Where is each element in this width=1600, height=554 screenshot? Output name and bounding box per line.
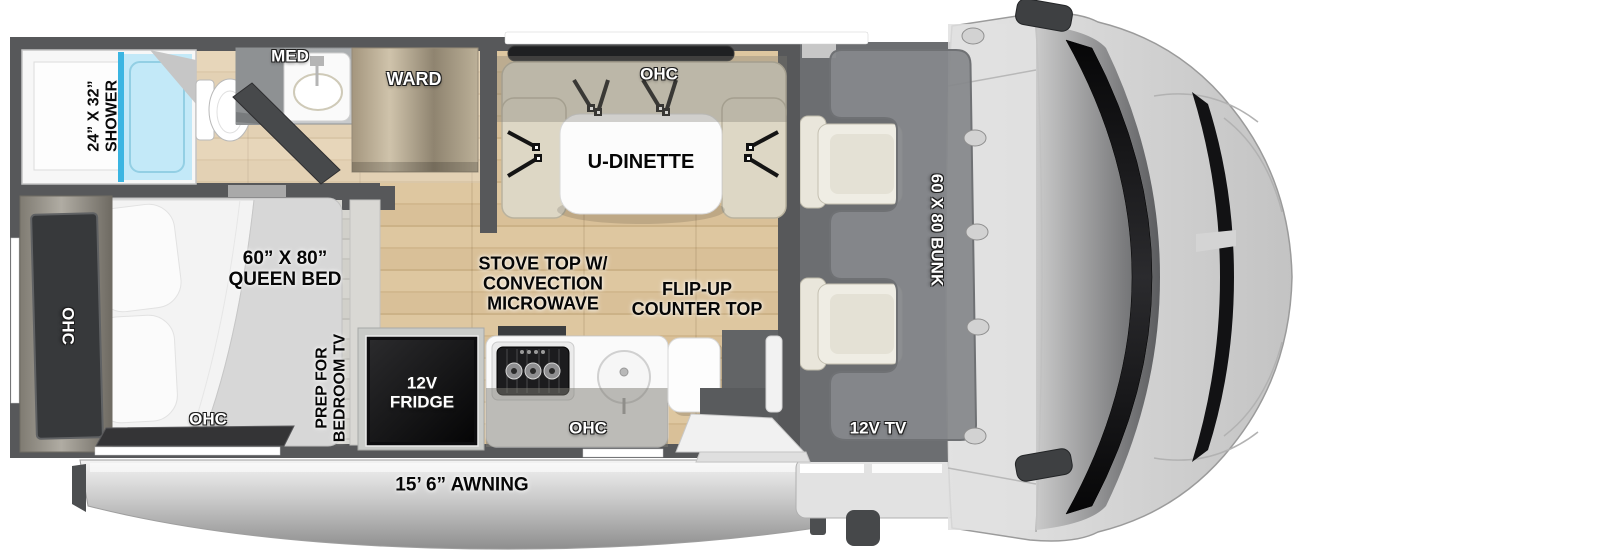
fridge-label: 12V FRIDGE [390,374,454,411]
queen-bed-label: 60” X 80” QUEEN BED [229,249,342,291]
wardrobe [352,48,478,172]
rv-floorplan: 24” X 32” SHOWER MED WARD OHC U-DINETTE … [0,0,1600,554]
stove-label: STOVE TOP W/ CONVECTION MICROWAVE [478,254,607,313]
u-dinette-label: U-DINETTE [588,151,695,173]
bunk-label: 60 X 80 BUNK [927,174,946,286]
bedroom-ohc-side-label: OHC [58,307,77,345]
entry-door-panel [766,336,782,412]
prep-tv-label: PREP FOR BEDROOM TV [313,334,348,442]
med-label: MED [271,48,309,67]
ward-label: WARD [387,70,442,90]
rear-camera-step [846,510,880,546]
faucet-icon [310,56,324,66]
shower-label: 24” X 32” SHOWER [85,80,120,152]
kitchen-ohc-label: OHC [569,420,607,439]
awning [72,460,826,549]
awning-label: 15’ 6” AWNING [395,476,528,497]
dinette-ohc-label: OHC [640,66,678,85]
passenger-seat [800,278,902,370]
dinette-wall [480,37,497,233]
slide-out-strip [505,32,868,44]
awning-end-cap-left [72,464,86,512]
bedroom-ohc-bottom-label: OHC [189,411,227,430]
bedroom-door [228,185,286,197]
tv-label: 12V TV [850,420,907,439]
driver-seat [800,116,902,208]
bunk-overlay [830,28,989,444]
flip-up-counter-label: FLIP-UP COUNTER TOP [632,280,763,320]
cab-body [946,0,1292,541]
